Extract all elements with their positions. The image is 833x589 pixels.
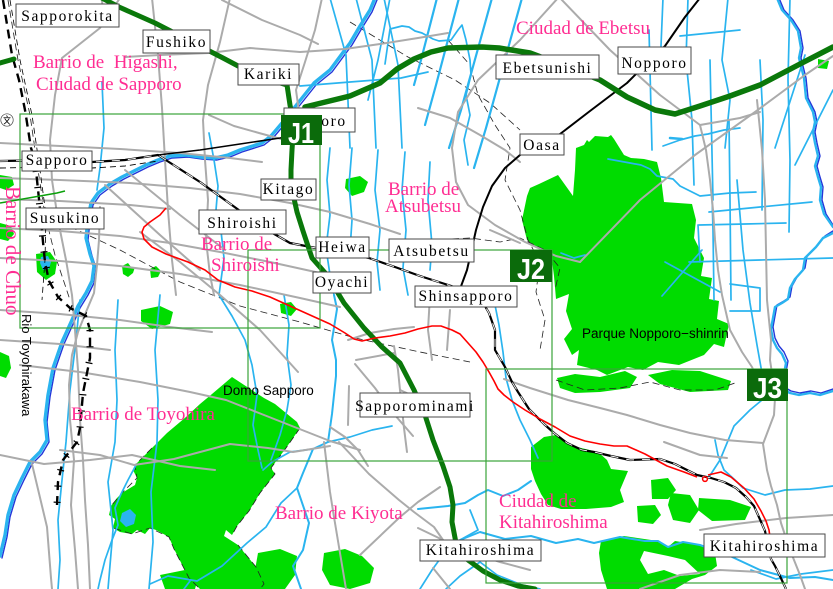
- svg-text:Oyachi: Oyachi: [315, 274, 369, 291]
- svg-text:Shiroishi: Shiroishi: [207, 215, 277, 232]
- svg-text:Atsubetsu: Atsubetsu: [393, 243, 469, 260]
- svg-text:Shiroishi: Shiroishi: [211, 255, 280, 276]
- svg-text:Barrio de Higashi,: Barrio de Higashi,: [33, 52, 178, 73]
- svg-text:Kariki: Kariki: [244, 66, 293, 83]
- svg-text:Barrio de: Barrio de: [201, 234, 272, 255]
- svg-text:Barrio de Toyohira: Barrio de Toyohira: [71, 404, 216, 425]
- svg-text:Atsubetsu: Atsubetsu: [385, 196, 462, 217]
- svg-text:Oasa: Oasa: [523, 137, 560, 154]
- svg-text:Ciudad de Sapporo: Ciudad de Sapporo: [36, 74, 182, 95]
- svg-text:Kitago: Kitago: [263, 181, 315, 198]
- svg-text:Sapporominami: Sapporominami: [355, 398, 475, 415]
- svg-text:Ebetsunishi: Ebetsunishi: [503, 60, 593, 77]
- svg-text:Susukino: Susukino: [30, 210, 101, 227]
- svg-text:Nopporo: Nopporo: [621, 55, 687, 72]
- svg-text:Ciudad de: Ciudad de: [499, 491, 577, 512]
- svg-text:Kitahiroshima: Kitahiroshima: [499, 512, 608, 533]
- svg-text:Barrio de Chuo: Barrio de Chuo: [1, 186, 25, 315]
- svg-text:Sapporokita: Sapporokita: [21, 8, 114, 25]
- svg-text:J3: J3: [753, 373, 782, 405]
- svg-text:Parque Nopporo−shinrin: Parque Nopporo−shinrin: [582, 326, 729, 341]
- svg-text:Kitahiroshima: Kitahiroshima: [710, 538, 819, 555]
- svg-text:Rio Toyohirakawa: Rio Toyohirakawa: [19, 314, 34, 417]
- svg-text:Ciudad de Ebetsu: Ciudad de Ebetsu: [516, 18, 651, 39]
- svg-text:Shinsapporo: Shinsapporo: [418, 288, 513, 305]
- svg-text:Domo Sapporo: Domo Sapporo: [223, 383, 314, 398]
- svg-text:oro: oro: [321, 113, 346, 130]
- svg-text:Barrio de Kiyota: Barrio de Kiyota: [275, 503, 403, 524]
- svg-text:Fushiko: Fushiko: [146, 34, 207, 51]
- svg-text:Kitahiroshima: Kitahiroshima: [426, 542, 535, 559]
- svg-text:Heiwa: Heiwa: [318, 239, 366, 256]
- svg-text:J2: J2: [517, 254, 545, 286]
- svg-text:Sapporo: Sapporo: [26, 152, 89, 169]
- svg-text:J1: J1: [288, 118, 314, 150]
